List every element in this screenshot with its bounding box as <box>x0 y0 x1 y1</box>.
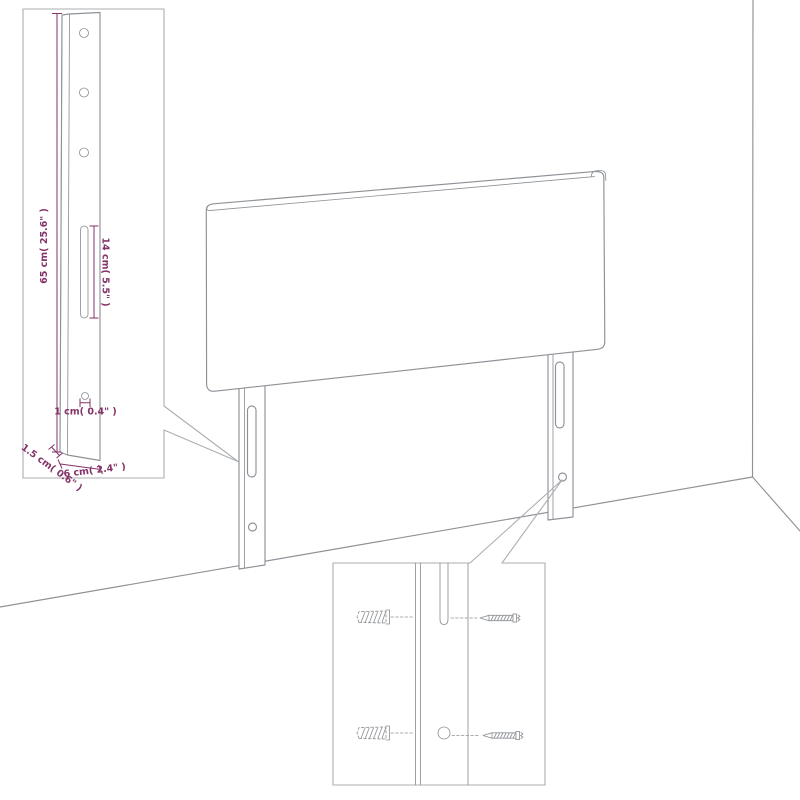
callout-leads <box>164 406 562 563</box>
panel-face <box>206 172 605 392</box>
headboard-panel <box>206 170 606 391</box>
wall-corner-line <box>753 0 754 477</box>
mount-slot <box>248 406 257 477</box>
dimension-label-hole-diameter: 1 cm( 0.4" ) <box>54 407 117 418</box>
leg-detail-lead-lines <box>164 406 238 462</box>
assembly-drawing: 65 cm( 25.6" ) 14 cm( 5.5" ) 1 cm( 0.4" … <box>0 0 800 800</box>
dimension-label-slot-length: 14 cm( 5.5" ) <box>100 237 111 306</box>
mount-slot <box>556 362 565 428</box>
dimension-label-leg-height: 65 cm( 25.6" ) <box>39 208 50 284</box>
mount-detail-lead-lines <box>470 480 562 563</box>
inset-frame <box>333 563 545 785</box>
mount-hole <box>249 523 257 531</box>
floor-wall-line-right <box>753 477 800 531</box>
inset-mounting-detail <box>333 563 545 785</box>
headboard-assembly-diagram: 65 cm( 25.6" ) 14 cm( 5.5" ) 1 cm( 0.4" … <box>0 0 800 800</box>
inset-leg-dimensions: 65 cm( 25.6" ) 14 cm( 5.5" ) 1 cm( 0.4" … <box>19 9 164 494</box>
